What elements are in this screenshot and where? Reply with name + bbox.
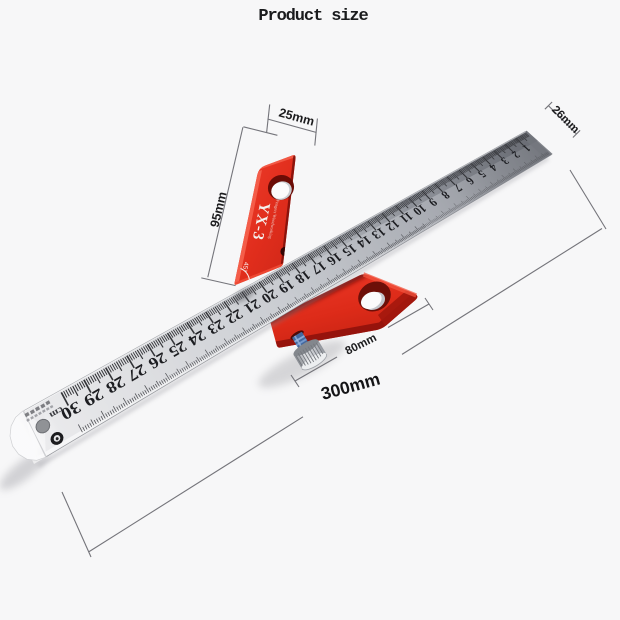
svg-text:Product size: Product size — [258, 7, 368, 26]
